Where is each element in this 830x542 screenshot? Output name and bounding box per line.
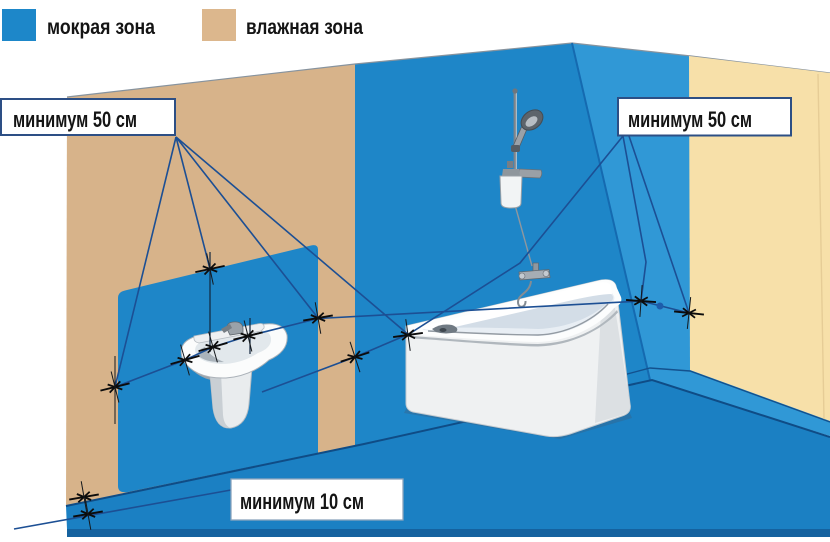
- svg-text:минимум 50 см: минимум 50 см: [628, 107, 752, 132]
- svg-text:влажная зона: влажная зона: [246, 16, 363, 39]
- svg-text:мокрая зона: мокрая зона: [47, 16, 155, 39]
- svg-text:минимум 10 см: минимум 10 см: [240, 489, 364, 514]
- svg-text:минимум 50 см: минимум 50 см: [13, 107, 137, 132]
